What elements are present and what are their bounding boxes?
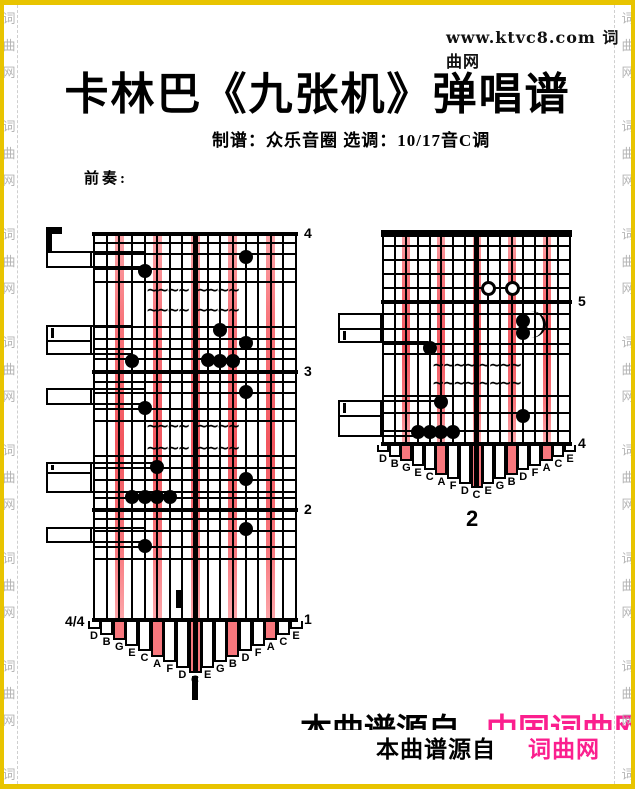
note-dot — [213, 323, 227, 337]
box-extension-line — [91, 266, 145, 268]
tine-tip — [482, 445, 494, 484]
tine-line — [382, 230, 384, 442]
box-extension-line — [381, 313, 520, 315]
tine-tip — [113, 621, 126, 640]
part-number-bar — [192, 676, 198, 700]
tine-line — [487, 230, 489, 442]
duration-box — [46, 251, 92, 268]
tine-line — [464, 230, 466, 442]
tine-line — [417, 230, 419, 442]
footer-watermark: 本曲谱源自词曲网 — [376, 730, 600, 764]
tine-tip — [176, 621, 189, 668]
tine-line — [295, 232, 297, 618]
time-signature: 4/4 — [65, 613, 95, 629]
measure-number: 4 — [578, 435, 598, 451]
tine-tip — [125, 621, 138, 646]
tine-line — [118, 232, 120, 618]
watermark-dash-line — [614, 0, 615, 789]
box-extension-line — [91, 462, 152, 464]
box-divider — [340, 415, 380, 417]
box-double-edge — [343, 403, 346, 413]
watermark-dash-line — [17, 0, 18, 789]
tine-line — [106, 232, 108, 618]
tine-tip — [138, 621, 151, 651]
tine-line — [270, 232, 272, 618]
measure-number: 3 — [304, 363, 324, 379]
glissando-mark: ~~~~ — [196, 281, 238, 299]
glissando-mark: ~~~~ — [146, 301, 188, 319]
box-extension-line — [381, 435, 414, 437]
note-dot — [239, 336, 253, 350]
note-dot — [423, 341, 437, 355]
measure-number: 4 — [304, 225, 324, 241]
glissando-mark: ~~~~ — [432, 374, 474, 392]
measure-number: 5 — [578, 293, 598, 309]
tine-line — [131, 232, 133, 618]
note-dot — [125, 490, 139, 504]
score-page: 词曲网词曲网词曲网词曲网词曲网词曲网词曲网词 词曲网词曲网词曲网词曲网词曲网词曲… — [0, 0, 635, 789]
tine-line — [452, 230, 454, 442]
tine-tip — [100, 621, 113, 635]
tine-line — [282, 232, 284, 618]
gold-border-right — [631, 0, 635, 789]
tine-tip — [447, 445, 459, 479]
glissando-mark: ~~~~ — [196, 439, 238, 457]
box-double-edge — [51, 465, 54, 470]
glissando-mark: ~~~~ — [146, 281, 188, 299]
note-dot — [138, 401, 152, 415]
measure-number: 1 — [304, 611, 324, 627]
gold-border-left — [0, 0, 4, 789]
duration-box — [46, 388, 92, 405]
tine-line — [405, 230, 407, 442]
box-extension-line — [381, 400, 441, 402]
box-double-edge — [51, 328, 54, 338]
note-dot — [239, 472, 253, 486]
box-divider — [340, 328, 380, 330]
tine-tip — [163, 621, 176, 662]
glissando-mark: ~~~~ — [478, 356, 520, 374]
note-dot — [150, 460, 164, 474]
tine-tip — [494, 445, 506, 479]
note-dot — [163, 490, 177, 504]
note-dot — [516, 409, 530, 423]
footer-watermark-ghost: 本曲谱源自中国词曲网 — [300, 705, 635, 730]
box-extension-line — [91, 325, 133, 327]
box-double-edge — [343, 331, 346, 340]
tine-line — [257, 232, 259, 618]
note-dot — [239, 522, 253, 536]
ghost-source-text: 本曲谱源自 — [300, 712, 460, 730]
note-dot — [239, 385, 253, 399]
tine-line — [569, 230, 571, 442]
box-extension-line — [91, 541, 145, 543]
glissando-mark: ~~~~ — [432, 356, 474, 374]
tine-line — [440, 230, 442, 442]
note-dot — [226, 354, 240, 368]
glissando-mark: ~~~~ — [478, 374, 520, 392]
tine-tip — [290, 621, 303, 629]
tine-line — [557, 230, 559, 442]
box-extension-line — [91, 388, 146, 390]
gold-border-bottom — [0, 784, 635, 789]
duration-box — [46, 527, 92, 543]
note-dot — [138, 264, 152, 278]
bar-mark — [176, 590, 181, 608]
open-note-circle — [481, 281, 496, 296]
box-divider — [48, 340, 90, 342]
note-dot — [516, 326, 530, 340]
note-dot — [446, 425, 460, 439]
tine-letter: E — [288, 630, 304, 643]
box-extension-line — [91, 251, 145, 253]
tine-line — [429, 230, 431, 442]
note-dot — [125, 354, 139, 368]
tine-line — [245, 232, 247, 618]
part-number: 2 — [466, 506, 490, 530]
tine-tip — [564, 445, 576, 452]
footer-site-name: 词曲网 — [528, 736, 600, 762]
tine-tip — [459, 445, 471, 484]
tine-line — [546, 230, 548, 442]
ghost-site-name: 中国词曲网 — [486, 712, 635, 730]
note-dot — [239, 250, 253, 264]
box-divider — [48, 472, 90, 474]
tine-tip — [201, 621, 214, 668]
corner-bracket — [46, 227, 62, 234]
gold-border-top — [0, 0, 635, 5]
glissando-mark: ~~~~ — [196, 417, 238, 435]
tine-line — [499, 230, 501, 442]
tine-tip — [214, 621, 227, 662]
glissando-mark: ~~~~ — [196, 301, 238, 319]
open-note-circle — [505, 281, 520, 296]
tine-line — [511, 230, 513, 442]
kalimba-tablature: 43214/4~~~~~~~~~~~~~~~~~~~~~~~~~~~~~~~~D… — [0, 0, 635, 789]
tine-line — [394, 230, 396, 442]
note-dot — [434, 395, 448, 409]
tine-line — [93, 232, 95, 618]
note-dot — [138, 539, 152, 553]
glissando-mark: ~~~~ — [146, 439, 188, 457]
tine-tip — [151, 621, 164, 657]
tine-letter: E — [562, 453, 578, 466]
box-extension-line — [91, 527, 145, 529]
tine-tip — [377, 445, 389, 452]
glissando-mark: ~~~~ — [146, 417, 188, 435]
footer-source-text: 本曲谱源自 — [376, 736, 496, 762]
measure-number: 2 — [304, 501, 324, 517]
box-extension-line — [381, 341, 428, 343]
